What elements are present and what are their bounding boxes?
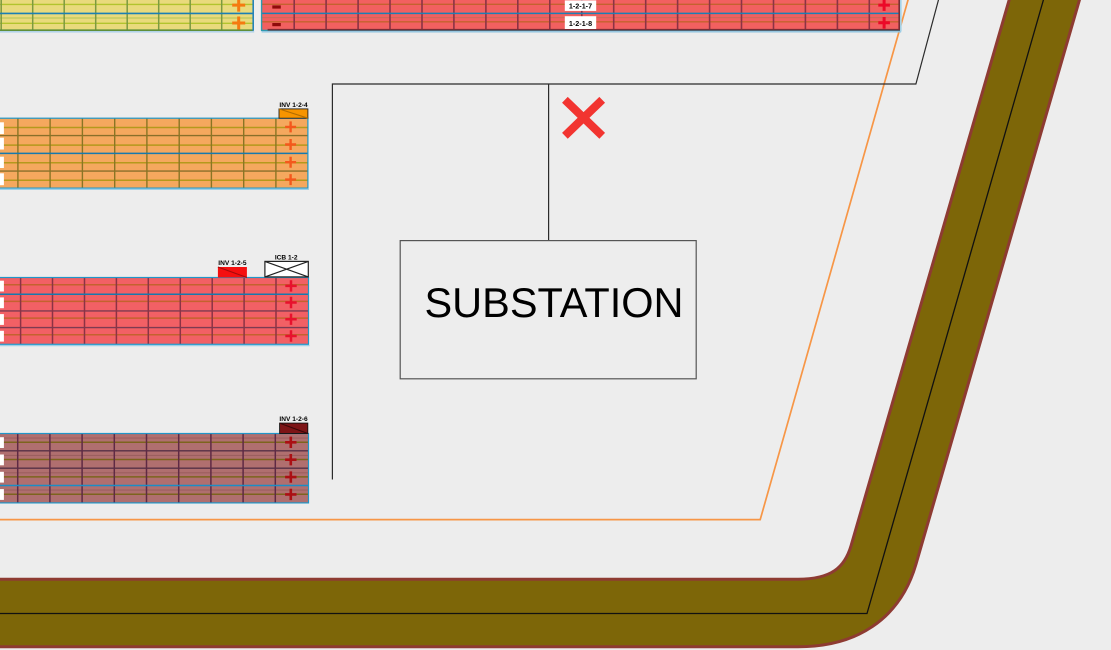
svg-text:1-2-1-8: 1-2-1-8 — [569, 19, 592, 28]
svg-text:ICB 1-2: ICB 1-2 — [275, 255, 298, 262]
svg-text:INV 1-2-5: INV 1-2-5 — [218, 260, 247, 267]
svg-text:INV 1-2-4: INV 1-2-4 — [279, 102, 308, 109]
svg-text:SUBSTATION: SUBSTATION — [424, 279, 683, 326]
svg-text:INV 1-2-6: INV 1-2-6 — [279, 416, 308, 423]
svg-text:1-2-1-7: 1-2-1-7 — [569, 2, 592, 11]
